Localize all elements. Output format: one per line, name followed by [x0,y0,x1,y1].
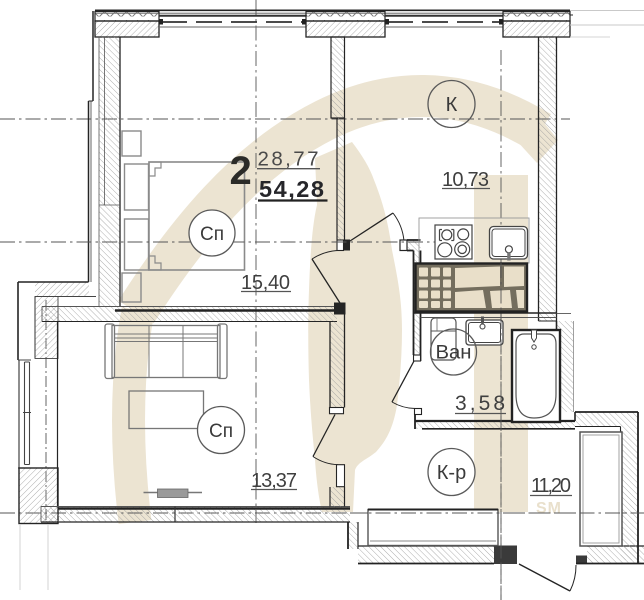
svg-text:11,20: 11,20 [531,475,571,497]
svg-text:SM: SM [536,500,562,517]
svg-text:Ван: Ван [436,343,472,364]
svg-text:15,40: 15,40 [241,272,290,294]
svg-text:28,77: 28,77 [258,148,319,171]
svg-text:3,58: 3,58 [455,392,505,415]
svg-text:К-р: К-р [437,462,466,484]
svg-text:Сп: Сп [209,421,233,442]
svg-text:13,37: 13,37 [251,470,297,492]
svg-text:Сп: Сп [200,224,224,245]
svg-text:2: 2 [230,149,252,193]
svg-text:К: К [446,94,458,116]
svg-text:10,73: 10,73 [442,169,489,191]
svg-text:54,28: 54,28 [259,176,324,202]
